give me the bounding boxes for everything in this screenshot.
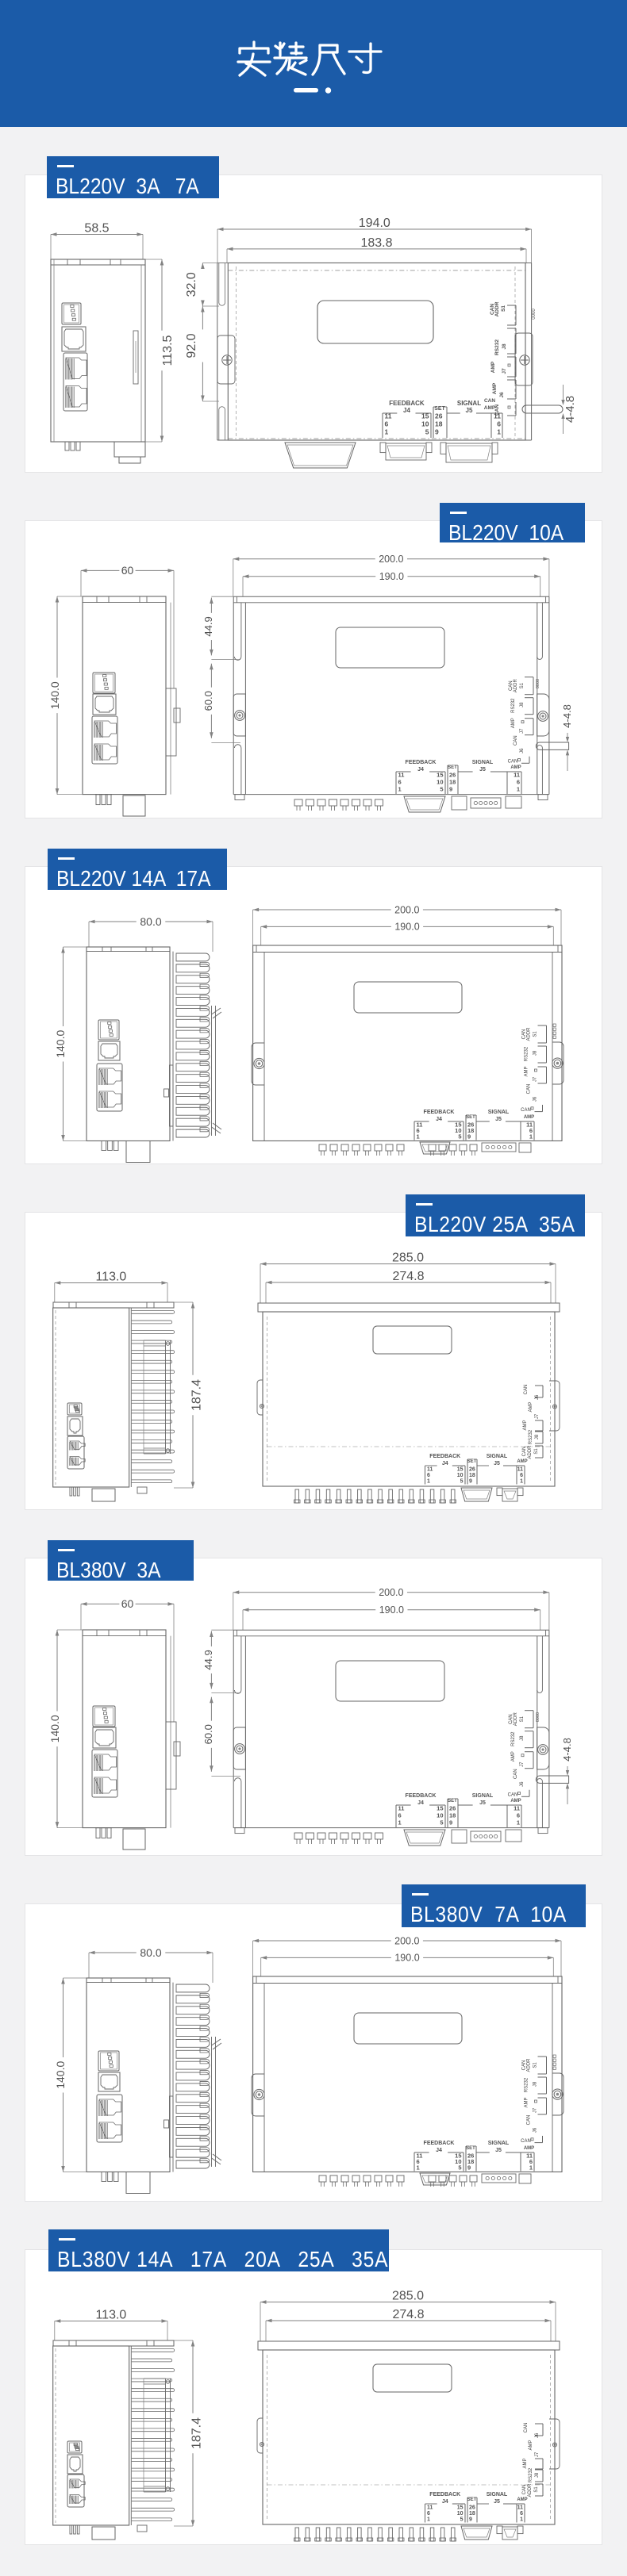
svg-text:CAN: CAN: [524, 2423, 529, 2433]
svg-text:AMP: AMP: [523, 2458, 528, 2468]
svg-text:11: 11: [494, 412, 501, 420]
svg-text:SIGNAL: SIGNAL: [487, 1454, 508, 1459]
svg-text:S1: S1: [534, 2486, 539, 2493]
svg-text:J6: J6: [533, 2127, 538, 2133]
svg-text:9: 9: [469, 1479, 472, 1485]
svg-text:AMP: AMP: [484, 405, 496, 411]
svg-text:5: 5: [425, 428, 429, 436]
svg-text:140.0: 140.0: [54, 2061, 67, 2089]
svg-text:J8: J8: [533, 1050, 538, 1056]
svg-text:CAN: CAN: [521, 1108, 531, 1113]
svg-text:10: 10: [457, 2511, 464, 2517]
svg-text:J7: J7: [520, 1761, 525, 1767]
svg-text:ADDR: ADDR: [514, 679, 518, 693]
svg-text:CAN: CAN: [521, 2139, 531, 2144]
svg-text:J4: J4: [442, 2499, 448, 2505]
svg-text:RS232: RS232: [525, 2077, 529, 2092]
svg-text:AMP: AMP: [525, 1066, 529, 1076]
svg-text:CAN: CAN: [522, 2485, 527, 2495]
svg-text:S1: S1: [520, 1715, 525, 1722]
svg-text:11: 11: [427, 2505, 433, 2511]
svg-text:9: 9: [449, 786, 452, 793]
svg-text:10: 10: [437, 1812, 443, 1819]
svg-text:J5: J5: [479, 1800, 486, 1806]
svg-text:SIGNAL: SIGNAL: [488, 1110, 510, 1115]
svg-text:44.9: 44.9: [202, 616, 214, 636]
svg-text:60: 60: [121, 1597, 134, 1610]
svg-text:SET: SET: [467, 1459, 477, 1464]
svg-text:187.4: 187.4: [190, 2417, 204, 2449]
svg-text:AMP: AMP: [490, 361, 496, 373]
svg-text:18: 18: [469, 2511, 475, 2517]
svg-text:10: 10: [457, 1473, 464, 1478]
svg-text:18: 18: [449, 1812, 456, 1819]
svg-text:194.0: 194.0: [359, 217, 390, 230]
svg-text:6: 6: [497, 420, 501, 428]
svg-text:J8: J8: [520, 702, 525, 707]
svg-text:10: 10: [437, 779, 443, 786]
svg-text:190.0: 190.0: [379, 1604, 404, 1616]
svg-text:FEEDBACK: FEEDBACK: [406, 760, 437, 765]
svg-text:0000: 0000: [536, 679, 540, 688]
svg-text:15: 15: [457, 1467, 464, 1473]
svg-text:200.0: 200.0: [379, 554, 403, 565]
svg-text:9: 9: [469, 2517, 472, 2523]
svg-text:60.0: 60.0: [202, 1724, 214, 1744]
svg-text:J7: J7: [502, 368, 507, 374]
svg-text:AMP: AMP: [492, 382, 498, 394]
svg-text:J8: J8: [535, 1434, 540, 1439]
svg-text:SET: SET: [466, 1115, 475, 1120]
svg-text:S1: S1: [533, 2062, 538, 2068]
svg-text:J6: J6: [535, 1394, 540, 1400]
svg-text:CAN: CAN: [508, 760, 518, 765]
svg-text:60.0: 60.0: [202, 691, 214, 711]
svg-text:11: 11: [517, 1467, 524, 1473]
svg-text:18: 18: [469, 1473, 475, 1478]
svg-text:J6: J6: [520, 1781, 525, 1787]
svg-text:RS232: RS232: [494, 339, 500, 355]
svg-text:1: 1: [427, 1479, 430, 1485]
svg-text:FEEDBACK: FEEDBACK: [424, 1110, 455, 1115]
svg-text:26: 26: [449, 1805, 456, 1812]
svg-text:32.0: 32.0: [185, 272, 198, 297]
svg-text:15: 15: [437, 1805, 443, 1812]
svg-text:J8: J8: [520, 1735, 525, 1741]
svg-text:FEEDBACK: FEEDBACK: [429, 1454, 460, 1459]
svg-text:140.0: 140.0: [48, 681, 61, 709]
svg-text:4-4.8: 4-4.8: [561, 704, 573, 728]
svg-text:113.5: 113.5: [161, 335, 175, 366]
svg-text:1: 1: [520, 1479, 523, 1485]
svg-text:15: 15: [437, 772, 443, 779]
svg-text:J4: J4: [436, 1117, 442, 1122]
svg-text:1: 1: [529, 2164, 533, 2172]
svg-text:RS232: RS232: [525, 1046, 529, 1061]
svg-text:ADDR: ADDR: [528, 1445, 533, 1459]
svg-text:80.0: 80.0: [140, 1946, 161, 1959]
svg-text:FEEDBACK: FEEDBACK: [424, 2141, 455, 2146]
svg-text:CAN: CAN: [527, 2115, 532, 2126]
svg-text:1: 1: [517, 786, 520, 793]
svg-text:285.0: 285.0: [392, 2290, 424, 2303]
svg-text:11: 11: [427, 1467, 433, 1473]
svg-text:CAN: CAN: [508, 1793, 518, 1798]
svg-text:J4: J4: [417, 767, 424, 772]
svg-text:FEEDBACK: FEEDBACK: [429, 2492, 460, 2497]
svg-text:J5: J5: [495, 1117, 502, 1122]
svg-text:5: 5: [460, 2517, 464, 2523]
svg-text:CAN: CAN: [522, 1447, 527, 1457]
svg-text:J4: J4: [403, 407, 410, 414]
svg-text:J5: J5: [494, 1461, 500, 1466]
svg-text:RS232: RS232: [529, 1429, 533, 1444]
svg-text:6: 6: [517, 779, 520, 786]
svg-text:6: 6: [520, 1473, 523, 1478]
svg-text:AMP: AMP: [525, 2097, 529, 2107]
svg-text:190.0: 190.0: [379, 571, 404, 582]
svg-text:11: 11: [398, 772, 405, 779]
svg-text:113.0: 113.0: [95, 1271, 126, 1284]
svg-text:4-4.8: 4-4.8: [561, 1738, 573, 1761]
svg-text:0000: 0000: [536, 1712, 540, 1722]
svg-text:26: 26: [469, 2505, 475, 2511]
svg-text:11: 11: [514, 1805, 520, 1812]
svg-text:AMP: AMP: [510, 1799, 521, 1804]
svg-text:RS232: RS232: [511, 1731, 516, 1746]
svg-text:6: 6: [427, 2511, 430, 2517]
svg-text:26: 26: [449, 772, 456, 779]
svg-text:CAN: CAN: [524, 1385, 529, 1395]
svg-text:1: 1: [398, 1819, 402, 1827]
svg-text:AMP: AMP: [510, 765, 521, 770]
svg-text:RS232: RS232: [511, 698, 516, 713]
svg-text:SET: SET: [448, 765, 457, 770]
svg-text:ADDR: ADDR: [494, 301, 500, 316]
svg-text:1: 1: [517, 1819, 520, 1827]
svg-text:5: 5: [440, 786, 443, 793]
svg-text:1: 1: [417, 1133, 420, 1140]
svg-text:SET: SET: [448, 1799, 457, 1804]
svg-text:5: 5: [460, 1479, 464, 1485]
svg-text:1: 1: [497, 428, 501, 436]
svg-text:J4: J4: [417, 1800, 424, 1806]
svg-text:9: 9: [435, 428, 439, 436]
svg-text:J5: J5: [466, 407, 473, 414]
svg-text:15: 15: [421, 412, 429, 420]
svg-text:5: 5: [440, 1819, 443, 1827]
svg-text:9: 9: [467, 1133, 471, 1140]
svg-text:1: 1: [385, 428, 389, 436]
svg-text:9: 9: [467, 2164, 471, 2172]
svg-text:J8: J8: [535, 2472, 540, 2478]
svg-text:11: 11: [514, 772, 520, 779]
svg-text:11: 11: [398, 1805, 405, 1812]
svg-text:J6: J6: [533, 1096, 538, 1102]
svg-text:AMP: AMP: [529, 2440, 533, 2450]
svg-text:1: 1: [529, 1133, 533, 1140]
svg-text:58.5: 58.5: [84, 222, 109, 236]
svg-text:1: 1: [417, 2164, 420, 2172]
svg-text:J7: J7: [533, 2107, 538, 2113]
svg-text:113.0: 113.0: [95, 2309, 126, 2322]
svg-text:AMP: AMP: [511, 1751, 516, 1761]
svg-text:26: 26: [435, 412, 443, 420]
svg-text:285.0: 285.0: [392, 1252, 424, 1265]
svg-text:6: 6: [427, 1473, 430, 1478]
svg-text:274.8: 274.8: [392, 1270, 424, 1283]
svg-text:18: 18: [435, 420, 443, 428]
svg-text:SIGNAL: SIGNAL: [488, 2141, 510, 2146]
svg-text:AMP: AMP: [523, 1420, 528, 1430]
svg-text:CAN: CAN: [527, 1084, 532, 1094]
svg-text:200.0: 200.0: [379, 1587, 403, 1598]
svg-text:RS232: RS232: [529, 2467, 533, 2482]
svg-text:6: 6: [517, 1812, 520, 1819]
svg-text:140.0: 140.0: [48, 1715, 61, 1742]
svg-text:92.0: 92.0: [185, 333, 198, 358]
svg-text:CAN: CAN: [484, 398, 495, 404]
svg-text:J8: J8: [502, 343, 507, 350]
svg-text:ADDR: ADDR: [527, 2058, 532, 2072]
svg-text:9: 9: [449, 1819, 452, 1827]
svg-text:274.8: 274.8: [392, 2308, 424, 2321]
svg-text:CAN: CAN: [514, 1769, 518, 1779]
svg-text:6: 6: [385, 420, 389, 428]
svg-text:J4: J4: [442, 1461, 448, 1466]
svg-text:140.0: 140.0: [54, 1030, 67, 1058]
svg-text:11: 11: [385, 412, 392, 420]
svg-text:SIGNAL: SIGNAL: [457, 400, 481, 407]
svg-text:26: 26: [469, 1467, 475, 1473]
svg-text:1: 1: [398, 786, 402, 793]
svg-text:J5: J5: [479, 767, 486, 772]
svg-text:J6: J6: [520, 748, 525, 753]
svg-text:1: 1: [427, 2517, 430, 2523]
svg-text:44.9: 44.9: [202, 1650, 214, 1669]
svg-text:FEEDBACK: FEEDBACK: [406, 1793, 437, 1799]
svg-text:60: 60: [121, 564, 134, 577]
svg-text:AMP: AMP: [529, 1401, 533, 1412]
svg-text:4-4.8: 4-4.8: [564, 396, 577, 423]
svg-text:5: 5: [458, 1133, 461, 1140]
svg-text:ADDR: ADDR: [514, 1712, 518, 1727]
svg-text:187.4: 187.4: [190, 1379, 204, 1411]
svg-text:190.0: 190.0: [394, 1953, 419, 1964]
svg-text:J8: J8: [533, 2081, 538, 2087]
svg-text:ADDR: ADDR: [527, 1027, 532, 1041]
svg-text:0000: 0000: [532, 309, 537, 320]
svg-text:J4: J4: [436, 2148, 442, 2153]
svg-text:6: 6: [520, 2511, 523, 2517]
svg-text:200.0: 200.0: [394, 1935, 419, 1946]
svg-text:ADDR: ADDR: [528, 2483, 533, 2497]
svg-text:SIGNAL: SIGNAL: [472, 760, 494, 765]
svg-text:J7: J7: [535, 1413, 540, 1419]
svg-text:J6: J6: [499, 392, 505, 398]
svg-text:J5: J5: [495, 2148, 502, 2153]
svg-text:10: 10: [421, 420, 429, 428]
svg-text:S1: S1: [533, 1031, 538, 1037]
svg-text:18: 18: [449, 779, 456, 786]
svg-text:6: 6: [398, 1812, 402, 1819]
svg-text:11: 11: [517, 2505, 524, 2511]
svg-text:15: 15: [457, 2505, 464, 2511]
svg-text:SET: SET: [467, 2497, 477, 2502]
svg-text:AMP: AMP: [517, 2497, 527, 2502]
svg-text:SIGNAL: SIGNAL: [487, 2492, 508, 2497]
svg-text:J7: J7: [533, 1076, 538, 1082]
svg-text:S1: S1: [520, 682, 525, 688]
svg-text:190.0: 190.0: [394, 922, 419, 933]
svg-text:J6: J6: [535, 2432, 540, 2438]
svg-text:AMP: AMP: [511, 718, 516, 728]
svg-text:AMP: AMP: [524, 2146, 534, 2151]
svg-text:SET: SET: [466, 2146, 475, 2151]
svg-text:SIGNAL: SIGNAL: [472, 1793, 494, 1799]
svg-text:J7: J7: [535, 2451, 540, 2457]
svg-text:1: 1: [520, 2517, 523, 2523]
svg-text:AMP: AMP: [517, 1459, 527, 1464]
svg-text:5: 5: [458, 2164, 461, 2172]
svg-text:80.0: 80.0: [140, 915, 161, 928]
svg-text:6: 6: [398, 779, 402, 786]
svg-text:CAN: CAN: [514, 735, 518, 746]
svg-text:J5: J5: [494, 2499, 500, 2505]
svg-text:S1: S1: [534, 1448, 539, 1455]
svg-text:AMP: AMP: [524, 1115, 534, 1120]
svg-text:183.8: 183.8: [360, 236, 392, 250]
svg-text:FEEDBACK: FEEDBACK: [389, 400, 425, 407]
svg-text:J7: J7: [520, 728, 525, 734]
svg-text:S1: S1: [501, 305, 506, 312]
svg-text:200.0: 200.0: [394, 904, 419, 915]
